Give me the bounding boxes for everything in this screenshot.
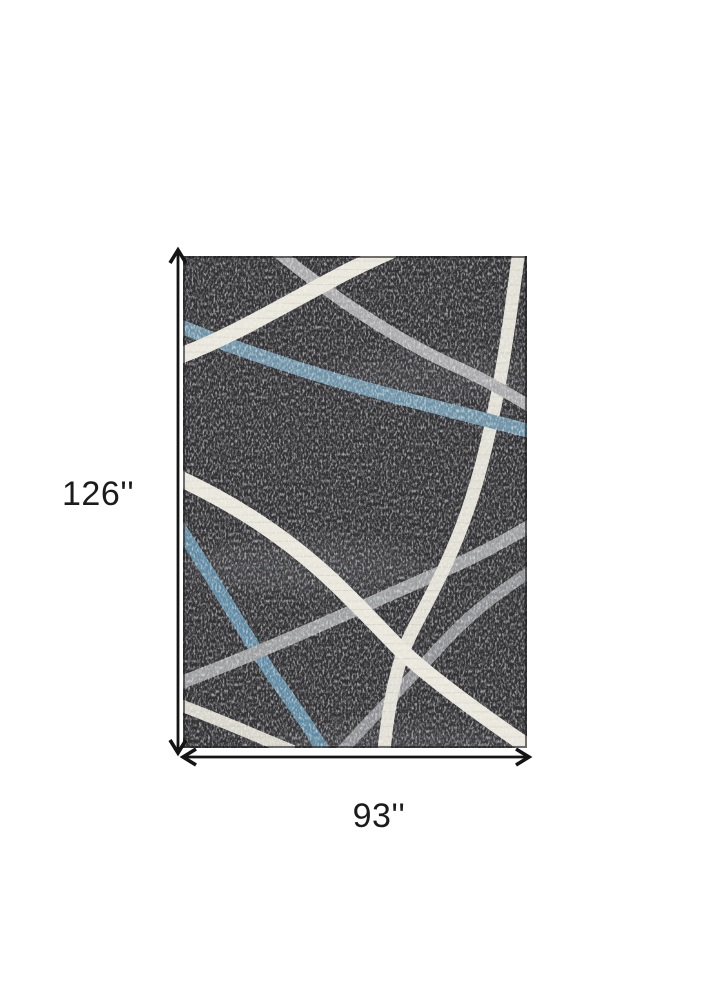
width-dimension-label: 93'' (348, 799, 410, 833)
rug-product-image (183, 256, 527, 748)
height-dimension-label: 126'' (62, 477, 134, 511)
rug-grain-dark (183, 256, 527, 748)
arrow-right-icon (516, 749, 529, 765)
dimension-diagram: 126'' 93'' (0, 0, 706, 1000)
width-arrow (183, 749, 529, 765)
arrow-left-icon (183, 749, 196, 765)
